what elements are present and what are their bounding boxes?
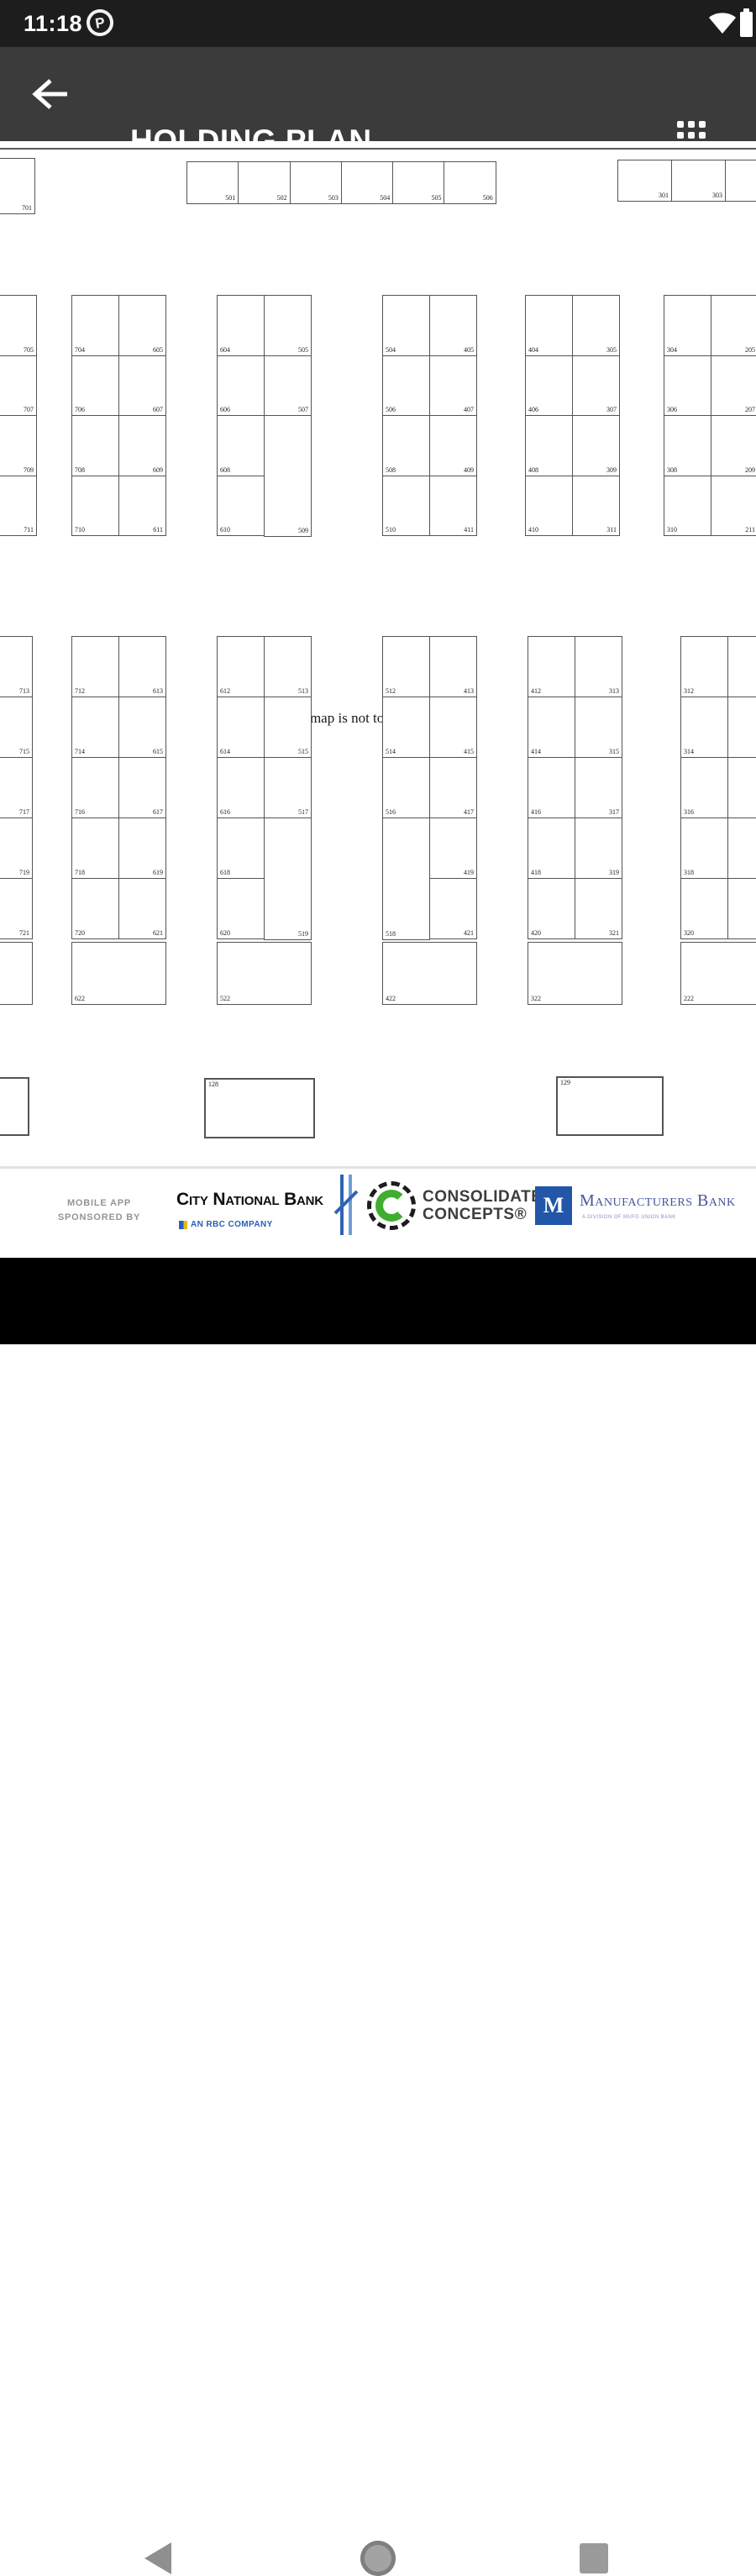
- booth-cell: [725, 160, 756, 202]
- booth-cell: 211: [711, 476, 756, 537]
- booth-number: 305: [606, 347, 617, 354]
- left-booth-column: 612614616618620: [217, 636, 265, 939]
- booth-cell: 305: [572, 295, 620, 356]
- booth-number: 707: [24, 407, 34, 413]
- booth-cell: 505: [264, 295, 312, 356]
- booth-cell: 222: [680, 942, 756, 1005]
- booth-cell: 419: [429, 817, 477, 879]
- booth-cell: 312: [680, 636, 728, 697]
- booth-number: 618: [220, 870, 230, 876]
- booth-cell: 522: [217, 942, 312, 1005]
- sponsored-by-line2: SPONSORED BY: [47, 1211, 151, 1225]
- left-booth-column: 512514516518: [382, 636, 430, 940]
- sponsored-by-line1: MOBILE APP: [47, 1196, 151, 1211]
- booth-number: 620: [220, 930, 230, 937]
- booth-number: 322: [531, 996, 541, 1002]
- booth-number: 701: [22, 205, 32, 212]
- booth-cell: 507: [264, 355, 312, 417]
- booth-number: 415: [464, 749, 474, 755]
- booth-number: 129: [560, 1080, 570, 1086]
- booth-cell: 406: [525, 355, 573, 417]
- booth-cell: 705: [0, 295, 37, 356]
- booth-cell: 512: [382, 636, 430, 697]
- booth-cell: 605: [118, 295, 166, 356]
- mb-monogram: M: [543, 1195, 564, 1217]
- booth-number: 512: [386, 688, 396, 695]
- booth-cell: 608: [217, 415, 265, 476]
- right-booth-column: 205207209211: [711, 295, 756, 536]
- booth-cell: 606: [217, 355, 265, 417]
- booth-number: 417: [464, 809, 474, 816]
- booth-number: 407: [464, 407, 474, 413]
- booth-cell: 515: [264, 697, 312, 758]
- booth-number: 418: [531, 870, 541, 876]
- booth-number: 318: [684, 870, 694, 876]
- booth-number: 711: [24, 527, 34, 534]
- booth-cell: 308: [664, 415, 711, 476]
- booth-number: 714: [75, 749, 85, 755]
- rbc-flag-icon: [179, 1221, 187, 1229]
- booth-number: 205: [745, 347, 755, 354]
- booth-cell: 711: [0, 476, 37, 537]
- booth-number: 209: [745, 467, 755, 474]
- booth-number: 708: [75, 467, 85, 474]
- entrance-box: 129: [556, 1076, 664, 1136]
- booth-number: 406: [528, 407, 538, 413]
- booth-cell: 310: [664, 476, 711, 537]
- booth-cell: 513: [264, 636, 312, 697]
- battery-icon: [740, 12, 753, 37]
- footer-divider: [0, 1166, 756, 1169]
- booth-number: 614: [220, 749, 230, 755]
- booth-number: 514: [386, 749, 396, 755]
- status-bar: 11:18 P: [0, 0, 756, 47]
- booth-cell: 706: [71, 355, 119, 417]
- booth-number: 608: [220, 467, 230, 474]
- booth-number: 613: [153, 688, 163, 695]
- booth-cell: 221: [727, 878, 756, 939]
- booth-number: 609: [153, 467, 163, 474]
- booth-cell: 215: [727, 697, 756, 758]
- booth-cell: 319: [575, 817, 622, 879]
- sponsored-by-label: MOBILE APP SPONSORED BY: [47, 1196, 151, 1225]
- booth-number: 409: [464, 467, 474, 474]
- booth-cell: 414: [528, 697, 575, 758]
- booth-cell: 508: [382, 415, 430, 476]
- booth-cell: 514: [382, 697, 430, 758]
- booth-cell: 501: [186, 161, 239, 204]
- booth-number: 501: [225, 195, 235, 202]
- booth-cell: 409: [429, 415, 477, 476]
- left-booth-column: 712714716718720: [71, 636, 119, 939]
- booth-number: 321: [609, 930, 619, 937]
- nav-recents-icon[interactable]: [580, 2543, 608, 2573]
- booth-cell: 314: [680, 697, 728, 758]
- booth-number: 710: [75, 527, 85, 534]
- booth-cell: 307: [572, 355, 620, 417]
- city-national-bank-mark-icon: [333, 1173, 359, 1241]
- booth-number: 408: [528, 467, 538, 474]
- booth-number: 320: [684, 930, 694, 937]
- booth-cell: 712: [71, 636, 119, 697]
- booth-number: 621: [153, 930, 163, 937]
- booth-cell: 313: [575, 636, 622, 697]
- booth-number: 604: [220, 347, 230, 354]
- booth-number: 502: [277, 195, 287, 202]
- booth-cell: 417: [429, 757, 477, 818]
- booth-number: 507: [298, 407, 308, 413]
- booth-cell: 318: [680, 817, 728, 879]
- booth-number: 505: [298, 347, 308, 354]
- booth-cell: 604: [217, 295, 265, 356]
- booth-cell: 721: [0, 878, 33, 939]
- booth-number: 518: [386, 931, 396, 938]
- booth-cell: 311: [572, 476, 620, 537]
- booth-cell: 510: [382, 476, 430, 537]
- booth-number: 607: [153, 407, 163, 413]
- booth-number: 310: [667, 527, 677, 534]
- booth-number: 304: [667, 347, 677, 354]
- back-button[interactable]: [29, 74, 72, 114]
- booth-number: 313: [609, 688, 619, 695]
- booth-cell: 709: [0, 415, 37, 476]
- left-booth-column: 404406408410: [525, 295, 573, 536]
- booth-cell: 502: [238, 161, 290, 204]
- booth-number: 721: [19, 930, 29, 937]
- booth-cell: 701: [0, 158, 35, 214]
- booth-cell: 316: [680, 757, 728, 818]
- booth-cell: 621: [118, 878, 166, 939]
- booth-number: 616: [220, 809, 230, 816]
- left-booth-column: 412414416418420: [528, 636, 575, 939]
- booth-number: 617: [153, 809, 163, 816]
- booth-cell: 418: [528, 817, 575, 879]
- booth-cell: 415: [429, 697, 477, 758]
- left-booth-column: 304306308310: [664, 295, 711, 536]
- booth-cell: 506: [444, 161, 496, 204]
- app-bar: HOLDING PLAN: [0, 47, 756, 141]
- manufacturers-bank-tagline: A DIVISION OF MUFG UNION BANK: [582, 1215, 676, 1220]
- booth-cell: 504: [382, 295, 430, 356]
- booth-number: 411: [464, 527, 474, 534]
- booth-number: 410: [528, 527, 538, 534]
- booth-number: 513: [298, 688, 308, 695]
- map-scale-note: This map is not to scale: [97, 710, 601, 727]
- booth-number: 412: [531, 688, 541, 695]
- booth-cell: 610: [217, 476, 265, 537]
- booth-number: 615: [153, 749, 163, 755]
- booth-cell: 612: [217, 636, 265, 697]
- booth-cell: 407: [429, 355, 477, 417]
- booth-number: 317: [609, 809, 619, 816]
- booth-cell: 517: [264, 757, 312, 818]
- booth-cell: 509: [264, 415, 312, 537]
- booth-number: 612: [220, 688, 230, 695]
- booth-cell: 309: [572, 415, 620, 476]
- booth-cell: 213: [727, 636, 756, 697]
- booth-number: 211: [745, 527, 755, 534]
- booth-number: 319: [609, 870, 619, 876]
- booth-number: 414: [531, 749, 541, 755]
- booth-cell: 412: [528, 636, 575, 697]
- booth-cell: 720: [71, 878, 119, 939]
- booth-cell: 405: [429, 295, 477, 356]
- right-booth-column: 513515517519: [264, 636, 312, 940]
- perimeter-booth-row: 701: [0, 158, 35, 214]
- booth-number: 706: [75, 407, 85, 413]
- booth-cell: 618: [217, 817, 265, 879]
- perimeter-booth-row: 501502503504505506: [186, 161, 496, 204]
- booth-cell: 617: [118, 757, 166, 818]
- booth-number: 306: [667, 407, 677, 413]
- wifi-icon: [708, 10, 737, 39]
- android-nav-bar: [0, 1258, 756, 1344]
- booth-number: 421: [464, 930, 474, 937]
- booth-number: 619: [153, 870, 163, 876]
- booth-number: 519: [298, 931, 308, 938]
- booth-cell: 505: [392, 161, 444, 204]
- booth-number: 611: [153, 527, 163, 534]
- booth-number: 413: [464, 688, 474, 695]
- nav-home-icon[interactable]: [360, 2541, 396, 2576]
- right-booth-column: 613615617619621: [118, 636, 166, 939]
- booth-number: 207: [745, 407, 755, 413]
- booth-number: 506: [386, 407, 396, 413]
- booth-number: 705: [24, 347, 34, 354]
- booth-cell: 411: [429, 476, 477, 537]
- booth-cell: 715: [0, 697, 33, 758]
- booth-number: 713: [19, 688, 29, 695]
- entrance-box: 128: [204, 1078, 315, 1138]
- booth-number: 610: [220, 527, 230, 534]
- booth-cell: 718: [71, 817, 119, 879]
- perimeter-booth-row: 301303: [617, 160, 756, 202]
- booth-cell: 506: [382, 355, 430, 417]
- right-booth-column: 505507509: [264, 295, 312, 537]
- booth-cell: 301: [617, 160, 672, 202]
- booth-cell: 719: [0, 817, 33, 879]
- booth-cell: 416: [528, 757, 575, 818]
- booth-number: 222: [684, 996, 694, 1002]
- booth-cell: 716: [71, 757, 119, 818]
- booth-cell: 422: [382, 942, 477, 1005]
- map-page-edge: [0, 148, 756, 150]
- booth-number: 503: [328, 195, 339, 202]
- booth-number: 311: [606, 527, 617, 534]
- manufacturers-bank-logo-text: Manufacturers Bank: [580, 1191, 736, 1211]
- booth-cell: 404: [525, 295, 573, 356]
- booth-cell: 421: [429, 878, 477, 939]
- booth-number: 704: [75, 347, 85, 354]
- booth-number: 314: [684, 749, 694, 755]
- clock: 11:18: [24, 11, 82, 37]
- booth-cell: 209: [711, 415, 756, 476]
- booth-cell: 614: [217, 697, 265, 758]
- booth-cell: 306: [664, 355, 711, 417]
- booth-number: 422: [386, 996, 396, 1002]
- booth-number: 720: [75, 930, 85, 937]
- right-booth-column: 213215217219221: [727, 636, 756, 939]
- booth-number: 622: [75, 996, 85, 1002]
- booth-number: 516: [386, 809, 396, 816]
- right-booth-column: 705707709711: [0, 295, 37, 536]
- green-c-icon: [375, 1190, 407, 1222]
- booth-cell: 704: [71, 295, 119, 356]
- booth-number: 509: [298, 528, 308, 534]
- booth-number: 303: [712, 192, 722, 199]
- manufacturers-bank-logo-icon: M: [535, 1186, 572, 1225]
- booth-cell: 609: [118, 415, 166, 476]
- booth-cell: 303: [671, 160, 726, 202]
- right-booth-column: 713715717719721: [0, 636, 33, 939]
- booth-number: 508: [386, 467, 396, 474]
- booth-number: 719: [19, 870, 29, 876]
- booth-cell: 207: [711, 355, 756, 417]
- booth-cell: 420: [528, 878, 575, 939]
- booth-cell: 217: [727, 757, 756, 818]
- booth-number: 510: [386, 527, 396, 534]
- nav-back-icon[interactable]: [144, 2542, 171, 2574]
- booth-cell: 707: [0, 355, 37, 417]
- booth-number: 307: [606, 407, 617, 413]
- booth-cell: 622: [71, 942, 166, 1005]
- entrance-box: [0, 1077, 29, 1136]
- booth-cell: 615: [118, 697, 166, 758]
- right-booth-column: 605607609611: [118, 295, 166, 536]
- rbc-company-line: AN RBC COMPANY: [179, 1220, 273, 1229]
- booth-cell: 321: [575, 878, 622, 939]
- booth-number: 506: [483, 195, 493, 202]
- booth-cell: 503: [290, 161, 342, 204]
- booth-cell: 607: [118, 355, 166, 417]
- booth-number: 517: [298, 809, 308, 816]
- right-booth-column: 313315317319321: [575, 636, 622, 939]
- booth-number: 515: [298, 749, 308, 755]
- booth-number: 715: [19, 749, 29, 755]
- booth-cell: 205: [711, 295, 756, 356]
- left-booth-column: 504506508510: [382, 295, 430, 536]
- left-booth-column: 312314316318320: [680, 636, 728, 939]
- booth-cell: 713: [0, 636, 33, 697]
- booth-number: 504: [380, 195, 390, 202]
- booth-cell: 613: [118, 636, 166, 697]
- rbc-company-text: AN RBC COMPANY: [191, 1220, 273, 1229]
- booth-number: 315: [609, 749, 619, 755]
- booth-cell: 714: [71, 697, 119, 758]
- booth-number: 416: [531, 809, 541, 816]
- right-booth-column: 413415417419421: [429, 636, 477, 939]
- booth-cell: [0, 942, 33, 1005]
- booth-number: 606: [220, 407, 230, 413]
- booth-cell: 315: [575, 697, 622, 758]
- booth-number: 312: [684, 688, 694, 695]
- booth-cell: 413: [429, 636, 477, 697]
- booth-number: 301: [659, 192, 669, 199]
- booth-cell: 322: [528, 942, 622, 1005]
- notification-badge-letter: P: [94, 15, 106, 31]
- booth-number: 712: [75, 688, 85, 695]
- booth-number: 505: [431, 195, 441, 202]
- booth-cell: 408: [525, 415, 573, 476]
- booth-number: 709: [24, 467, 34, 474]
- booth-cell: 219: [727, 817, 756, 879]
- right-booth-column: 305307309311: [572, 295, 620, 536]
- booth-cell: 504: [341, 161, 393, 204]
- consolidated-concepts-logo-icon: [367, 1181, 416, 1230]
- booth-cell: 518: [382, 817, 430, 940]
- booth-number: 309: [606, 467, 617, 474]
- booth-number: 717: [19, 809, 29, 816]
- right-booth-column: 405407409411: [429, 295, 477, 536]
- booth-number: 404: [528, 347, 538, 354]
- city-national-bank-logo-text: City National Bank: [176, 1190, 323, 1210]
- booth-cell: 616: [217, 757, 265, 818]
- booth-cell: 620: [217, 878, 265, 939]
- booth-cell: 320: [680, 878, 728, 939]
- booth-number: 504: [386, 347, 396, 354]
- notification-icon: P: [84, 7, 115, 38]
- booth-number: 405: [464, 347, 474, 354]
- booth-cell: 710: [71, 476, 119, 537]
- booth-cell: 717: [0, 757, 33, 818]
- booth-cell: 516: [382, 757, 430, 818]
- booth-cell: 611: [118, 476, 166, 537]
- booth-cell: 317: [575, 757, 622, 818]
- booth-number: 420: [531, 930, 541, 937]
- booth-number: 522: [220, 996, 230, 1002]
- booth-cell: 708: [71, 415, 119, 476]
- booth-number: 128: [208, 1081, 218, 1088]
- left-booth-column: 604606608610: [217, 295, 265, 536]
- booth-cell: 410: [525, 476, 573, 537]
- booth-cell: 619: [118, 817, 166, 879]
- booth-number: 605: [153, 347, 163, 354]
- booth-number: 308: [667, 467, 677, 474]
- booth-number: 716: [75, 809, 85, 816]
- booth-cell: 304: [664, 295, 711, 356]
- booth-number: 419: [464, 870, 474, 876]
- left-booth-column: 704706708710: [71, 295, 119, 536]
- booth-number: 316: [684, 809, 694, 816]
- booth-number: 718: [75, 870, 85, 876]
- floor-plan-map[interactable]: This map is not to scale ENTRANCE 705707…: [0, 141, 756, 1258]
- booth-cell: 519: [264, 817, 312, 940]
